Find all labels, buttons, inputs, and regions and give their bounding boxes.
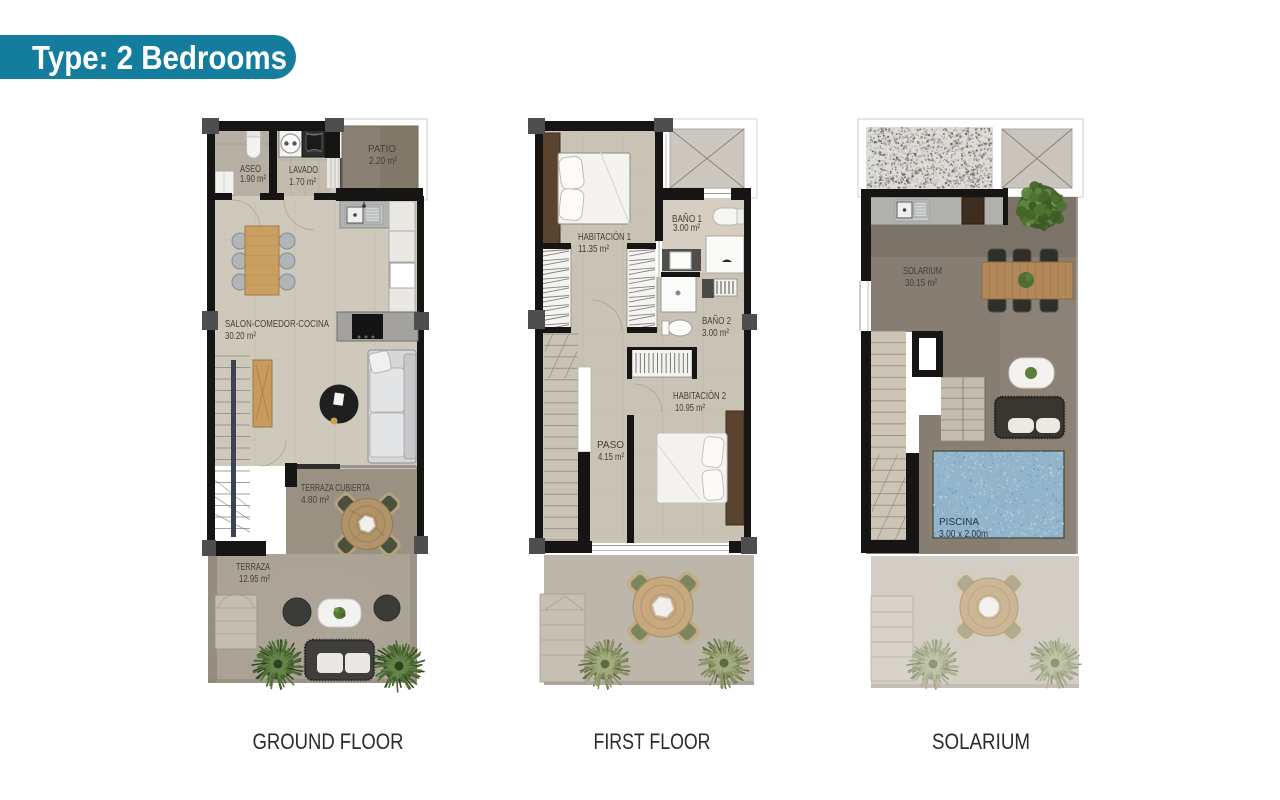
svg-text:SOLARIUM: SOLARIUM	[932, 729, 1030, 754]
svg-text:30.20 m²: 30.20 m²	[225, 331, 257, 342]
svg-text:1.70 m²: 1.70 m²	[289, 177, 317, 188]
svg-text:BAÑO 2: BAÑO 2	[702, 314, 731, 327]
svg-text:30.15 m²: 30.15 m²	[905, 278, 938, 289]
svg-text:PATIO: PATIO	[368, 144, 396, 155]
svg-text:PASO: PASO	[597, 440, 624, 451]
svg-text:TERRAZA CUBIERTA: TERRAZA CUBIERTA	[301, 483, 370, 494]
svg-text:2.20 m²: 2.20 m²	[369, 156, 398, 167]
svg-text:11.35 m²: 11.35 m²	[578, 244, 610, 255]
svg-text:GROUND FLOOR: GROUND FLOOR	[253, 729, 404, 754]
svg-text:4.15 m²: 4.15 m²	[598, 452, 625, 463]
svg-text:3.00 m²: 3.00 m²	[673, 223, 701, 234]
svg-text:LAVADO: LAVADO	[289, 165, 318, 176]
svg-text:4.80 m²: 4.80 m²	[301, 495, 330, 506]
svg-text:PISCINA: PISCINA	[939, 517, 979, 528]
svg-text:HABITACIÓN 1: HABITACIÓN 1	[578, 230, 631, 243]
svg-text:SALON-COMEDOR-COCINA: SALON-COMEDOR-COCINA	[225, 319, 329, 330]
svg-text:10.95 m²: 10.95 m²	[675, 403, 706, 414]
svg-text:3.00 m²: 3.00 m²	[702, 328, 730, 339]
svg-text:3.00 x 2.00m: 3.00 x 2.00m	[939, 529, 988, 540]
svg-text:1.90 m²: 1.90 m²	[240, 174, 267, 185]
svg-text:12.95 m²: 12.95 m²	[239, 574, 271, 585]
svg-text:FIRST FLOOR: FIRST FLOOR	[594, 729, 711, 754]
svg-text:TERRAZA: TERRAZA	[236, 562, 270, 573]
svg-text:HABITACIÓN 2: HABITACIÓN 2	[673, 389, 726, 402]
svg-text:Type: 2 Bedrooms: Type: 2 Bedrooms	[32, 39, 287, 76]
svg-text:SOLARIUM: SOLARIUM	[903, 266, 942, 277]
